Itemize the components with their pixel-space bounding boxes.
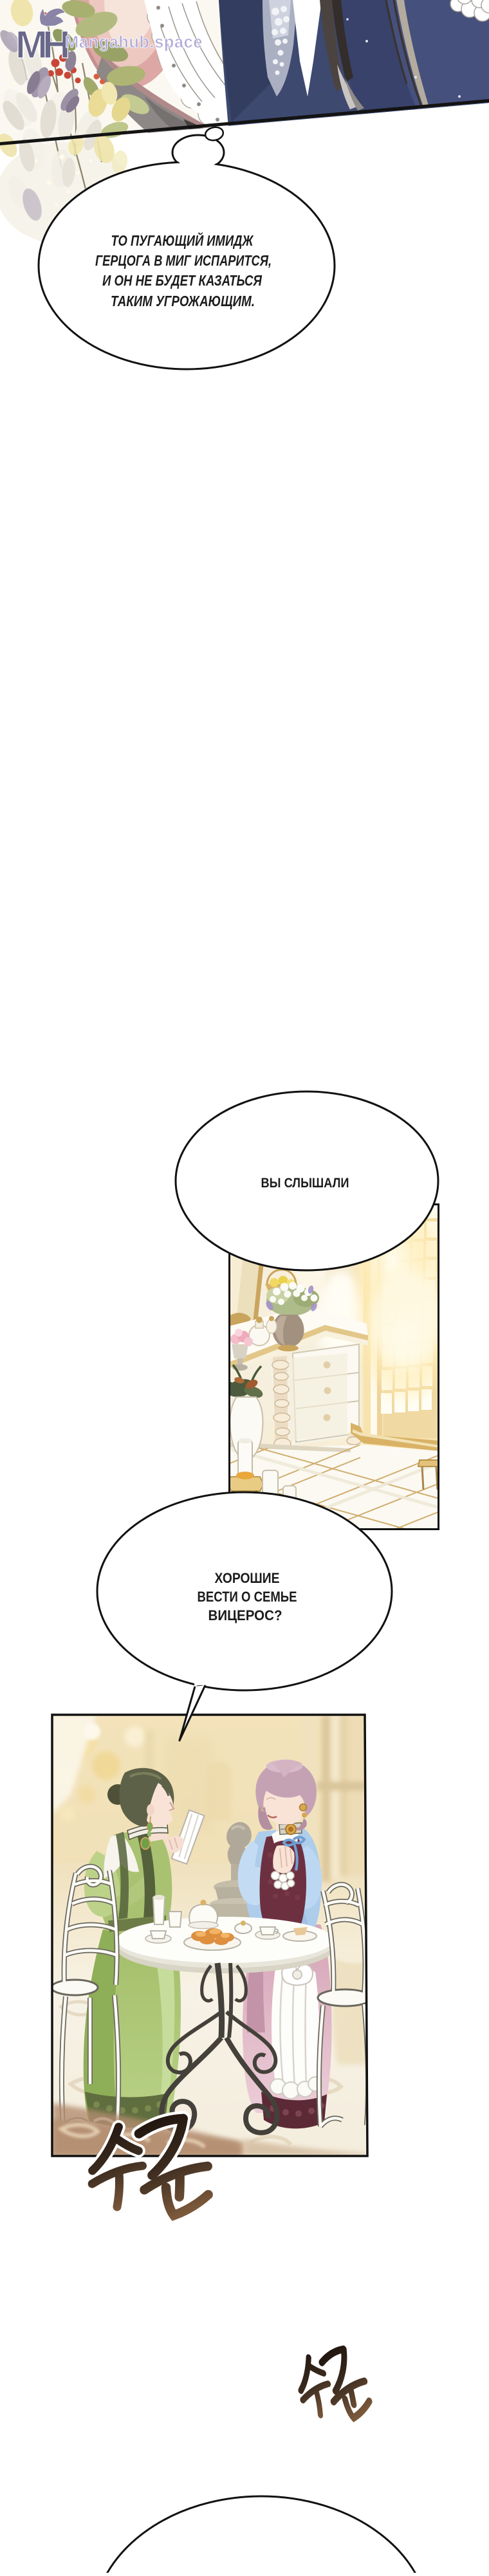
svg-text:MH: MH	[15, 23, 68, 66]
svg-text:ВЫ СЛЫШАЛИ: ВЫ СЛЫШАЛИ	[261, 1176, 349, 1191]
svg-text:ВЕСТИ О СЕМЬЕ: ВЕСТИ О СЕМЬЕ	[198, 1589, 297, 1605]
svg-text:ГЕРЦОГА В МИГ ИСПАРИТСЯ,: ГЕРЦОГА В МИГ ИСПАРИТСЯ,	[95, 252, 272, 269]
svg-text:ХОРОШИЕ: ХОРОШИЕ	[215, 1570, 280, 1586]
svg-text:Mangahub.space: Mangahub.space	[65, 33, 203, 51]
svg-text:И ОН НЕ БУДЕТ КАЗАТЬСЯ: И ОН НЕ БУДЕТ КАЗАТЬСЯ	[102, 272, 263, 289]
svg-text:ТО ПУГАЮЩИЙ ИМИДЖ: ТО ПУГАЮЩИЙ ИМИДЖ	[111, 231, 254, 249]
svg-text:ТАКИМ УГРОЖАЮЩИМ.: ТАКИМ УГРОЖАЮЩИМ.	[111, 293, 255, 309]
svg-text:ВИЦЕРОС?: ВИЦЕРОС?	[208, 1607, 282, 1623]
